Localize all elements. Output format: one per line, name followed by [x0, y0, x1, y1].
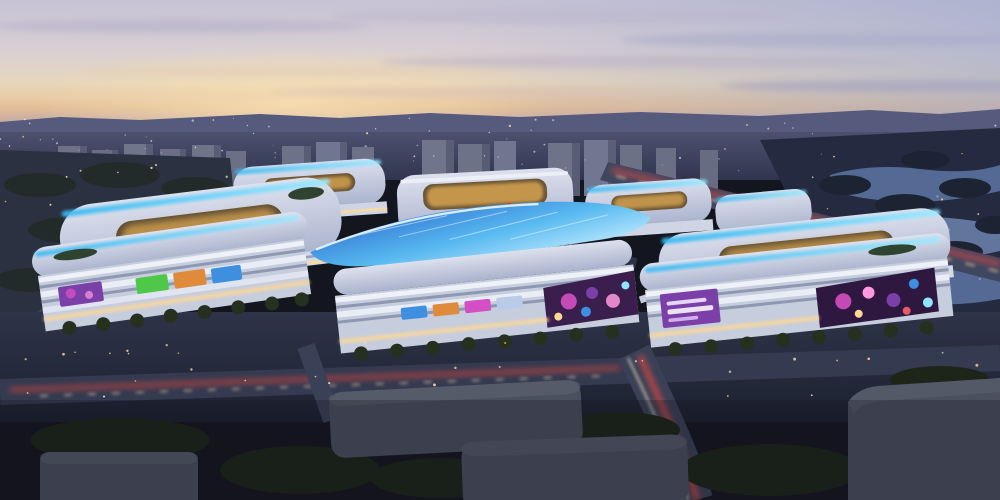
light-dot: [718, 158, 720, 160]
light-dot: [565, 167, 566, 168]
light-dot: [22, 136, 24, 138]
light-dot: [484, 155, 485, 156]
light-dot: [867, 358, 870, 361]
scene-svg: [0, 0, 1000, 500]
light-dot: [433, 384, 436, 387]
light-dot: [409, 118, 411, 120]
light-dot: [128, 353, 130, 355]
light-dot: [150, 140, 152, 142]
light-dot: [543, 144, 545, 146]
light-dot: [812, 133, 813, 134]
light-dot: [489, 132, 490, 133]
light-dot: [533, 151, 535, 153]
light-dot: [155, 164, 157, 166]
light-dot: [78, 150, 79, 151]
light-dot: [275, 152, 276, 153]
light-dot: [247, 125, 248, 126]
light-dot: [192, 119, 194, 121]
light-dot: [40, 139, 41, 140]
light-dot: [52, 138, 53, 139]
purple-billboard: [660, 288, 721, 328]
light-dot: [811, 394, 813, 396]
light-dot: [125, 134, 126, 135]
rendering-canvas: [0, 0, 1000, 500]
light-dot: [150, 167, 152, 169]
light-dot: [812, 176, 814, 178]
light-dot: [584, 159, 585, 160]
light-dot: [25, 358, 27, 360]
light-dot: [80, 170, 82, 172]
light-dot: [221, 150, 223, 152]
light-dot: [429, 130, 431, 132]
light-dot: [521, 164, 522, 165]
light-dot: [212, 119, 214, 121]
light-dot: [793, 358, 796, 361]
light-dot: [5, 201, 7, 203]
light-dot: [190, 368, 192, 370]
light-dot: [226, 176, 228, 178]
light-dot: [29, 122, 31, 124]
light-dot: [821, 154, 822, 155]
light-dot: [530, 130, 531, 131]
light-dot: [662, 164, 663, 165]
light-dot: [936, 195, 938, 197]
light-dot: [9, 145, 11, 147]
light-dot: [635, 360, 637, 362]
light-dot: [499, 366, 501, 368]
light-dot: [253, 133, 254, 134]
light-dot: [729, 371, 732, 374]
light-dot: [49, 204, 51, 206]
light-dot: [433, 155, 435, 157]
light-dot: [497, 156, 499, 158]
light-dot: [767, 128, 769, 130]
light-dot: [942, 352, 944, 354]
light-dot: [413, 160, 414, 161]
light-dot: [738, 170, 739, 171]
light-dot: [195, 146, 196, 147]
light-dot: [364, 342, 366, 344]
light-dot: [178, 352, 180, 354]
light-dot: [994, 125, 996, 127]
light-dot: [126, 350, 128, 352]
light-dot: [161, 152, 162, 153]
light-dot: [836, 360, 838, 362]
light-dot: [535, 119, 537, 121]
light-dot: [727, 395, 729, 397]
light-dot: [274, 157, 275, 158]
light-dot: [949, 230, 950, 231]
light-dot: [977, 213, 979, 215]
light-dot: [975, 364, 978, 367]
light-dot: [135, 380, 137, 382]
light-dot: [109, 352, 111, 354]
light-dot: [552, 119, 554, 121]
light-dot: [27, 392, 29, 394]
light-dot: [244, 380, 246, 382]
light-dot: [509, 125, 511, 127]
light-dot: [417, 145, 419, 147]
light-dot: [166, 344, 168, 346]
light-dot: [146, 136, 147, 137]
light-dot: [117, 171, 119, 173]
light-dot: [74, 351, 76, 353]
light-dot: [784, 122, 786, 124]
light-dot: [375, 128, 377, 130]
light-dot: [827, 208, 828, 209]
light-dot: [272, 145, 273, 146]
light-dot: [504, 342, 506, 344]
light-dot: [233, 118, 234, 119]
light-dot: [413, 155, 415, 157]
bottom-vignette: [0, 400, 1000, 500]
light-dot: [792, 127, 793, 128]
light-dot: [315, 376, 317, 378]
light-dot: [641, 360, 643, 362]
light-dot: [961, 153, 962, 154]
light-dot: [506, 138, 507, 139]
light-dot: [66, 176, 68, 178]
light-dot: [979, 278, 981, 280]
light-dot: [724, 148, 726, 150]
light-dot: [62, 353, 65, 356]
light-dot: [679, 157, 681, 159]
light-dot: [454, 367, 456, 369]
light-dot: [268, 126, 270, 128]
light-dot: [833, 156, 835, 158]
light-dot: [24, 119, 26, 121]
light-dot: [941, 198, 943, 200]
light-dot: [145, 148, 146, 149]
light-dot: [56, 142, 58, 144]
light-dot: [328, 382, 330, 384]
light-dot: [103, 395, 105, 397]
light-dot: [366, 132, 368, 134]
light-dot: [746, 124, 748, 126]
